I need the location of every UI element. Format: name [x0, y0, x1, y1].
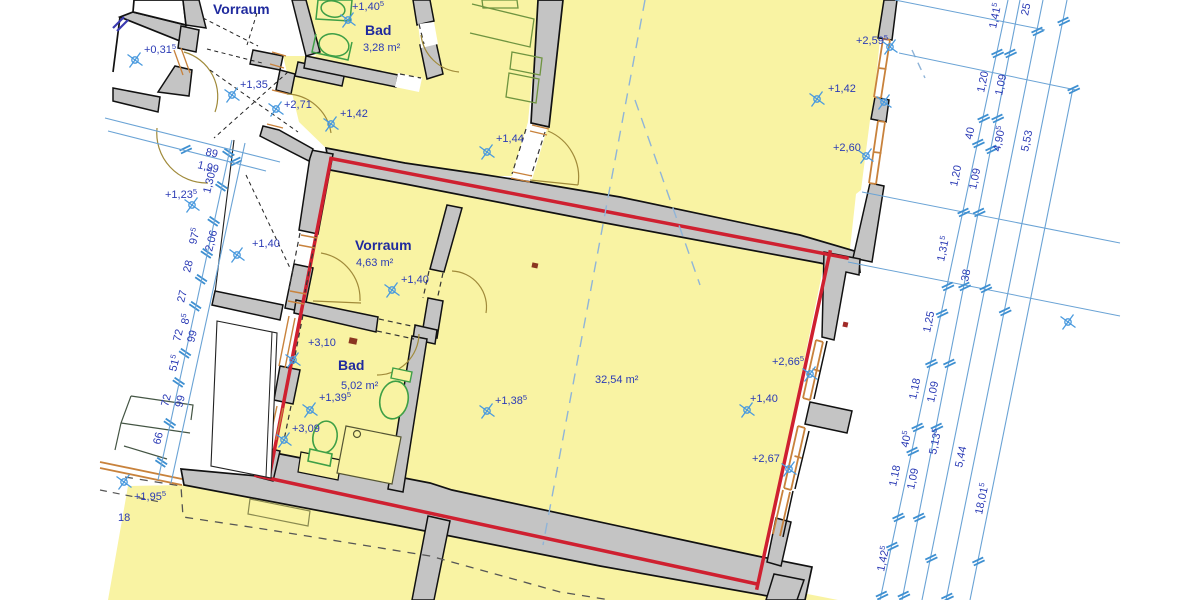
svg-text:3,28 m²: 3,28 m²	[363, 42, 401, 54]
svg-text:+1,40: +1,40	[252, 238, 280, 250]
svg-text:40: 40	[963, 126, 977, 140]
svg-text:+1,44: +1,44	[496, 133, 524, 145]
svg-text:+2,71: +2,71	[284, 99, 312, 111]
svg-text:+1,405: +1,405	[352, 0, 384, 13]
svg-text:+2,60: +2,60	[833, 142, 861, 154]
svg-text:+1,40: +1,40	[750, 393, 778, 405]
svg-text:+1,40: +1,40	[401, 274, 429, 286]
svg-text:32,54 m²: 32,54 m²	[595, 374, 639, 386]
svg-text:+2,665: +2,665	[772, 354, 804, 368]
svg-text:Bad: Bad	[365, 22, 391, 38]
svg-text:38: 38	[959, 268, 973, 282]
svg-text:+1,955: +1,955	[134, 489, 166, 503]
svg-text:+3,09: +3,09	[292, 423, 320, 435]
svg-text:+2,67: +2,67	[752, 453, 780, 465]
svg-text:+1,42: +1,42	[828, 83, 856, 95]
svg-text:+1,42: +1,42	[340, 108, 368, 120]
svg-text:25: 25	[1019, 2, 1033, 16]
svg-text:4,63 m²: 4,63 m²	[356, 257, 394, 269]
svg-text:+1,235: +1,235	[165, 187, 197, 201]
svg-text:+3,10: +3,10	[308, 337, 336, 349]
svg-text:Vorraum: Vorraum	[213, 1, 270, 17]
svg-text:+0,315: +0,315	[144, 42, 176, 56]
svg-text:+1,35: +1,35	[240, 79, 268, 91]
svg-text:Vorraum: Vorraum	[355, 237, 412, 253]
svg-text:18: 18	[118, 512, 130, 524]
svg-text:+2,595: +2,595	[856, 33, 888, 47]
svg-text:+1,385: +1,385	[495, 393, 527, 407]
svg-text:+1,395: +1,395	[319, 390, 351, 404]
svg-text:Bad: Bad	[338, 357, 364, 373]
